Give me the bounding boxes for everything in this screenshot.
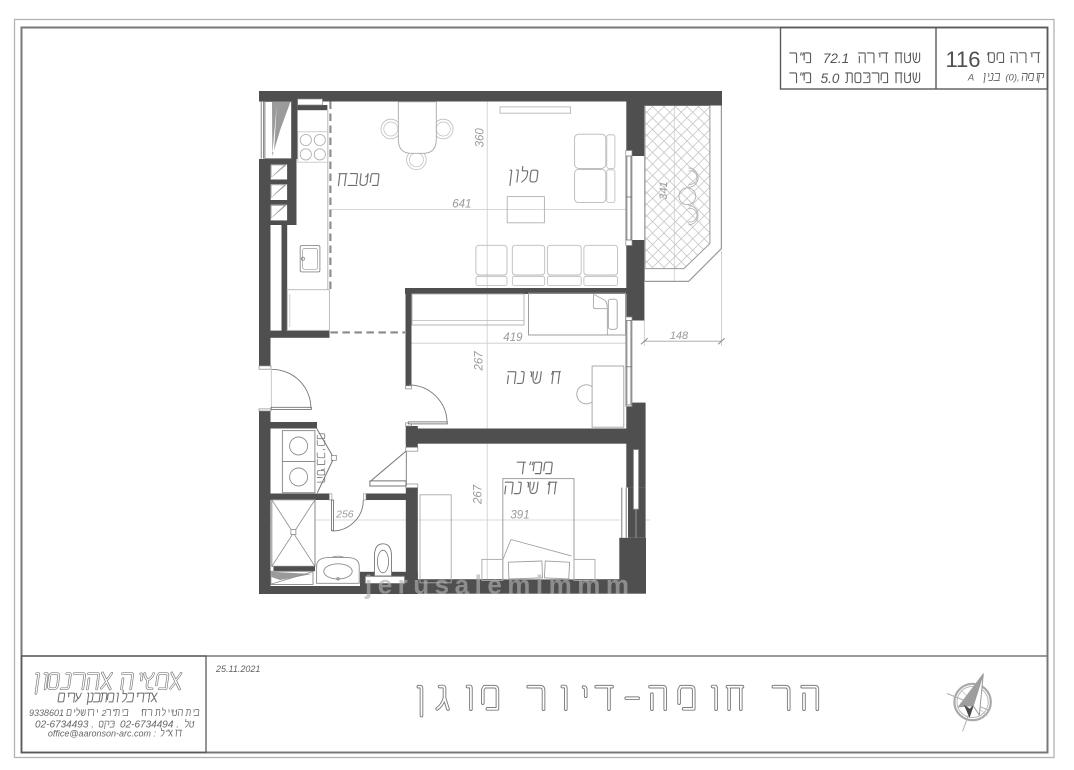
svg-text:256: 256 xyxy=(335,509,354,521)
svg-text:360: 360 xyxy=(475,128,487,148)
svg-text:341: 341 xyxy=(658,181,670,199)
svg-text:2: 2 xyxy=(101,708,107,718)
svg-text:office@aaronson-arc.com :: office@aaronson-arc.com : xyxy=(48,729,157,739)
svg-text:72.1: 72.1 xyxy=(823,51,849,66)
svg-text:641: 641 xyxy=(452,199,471,211)
svg-text:9338601: 9338601 xyxy=(29,708,64,718)
svg-text:419: 419 xyxy=(503,332,523,344)
svg-text:267: 267 xyxy=(473,484,485,505)
svg-text:391: 391 xyxy=(510,509,529,521)
svg-text:(0),: (0), xyxy=(1005,73,1019,84)
svg-text:116: 116 xyxy=(945,47,980,72)
svg-text:267: 267 xyxy=(473,351,485,372)
svg-text:A: A xyxy=(967,73,974,84)
svg-text:jerusalemimmm: jerusalemimmm xyxy=(364,570,634,600)
svg-text:5.0: 5.0 xyxy=(821,71,840,86)
svg-text:25.11.2021: 25.11.2021 xyxy=(215,664,260,674)
svg-text:148: 148 xyxy=(670,330,689,342)
